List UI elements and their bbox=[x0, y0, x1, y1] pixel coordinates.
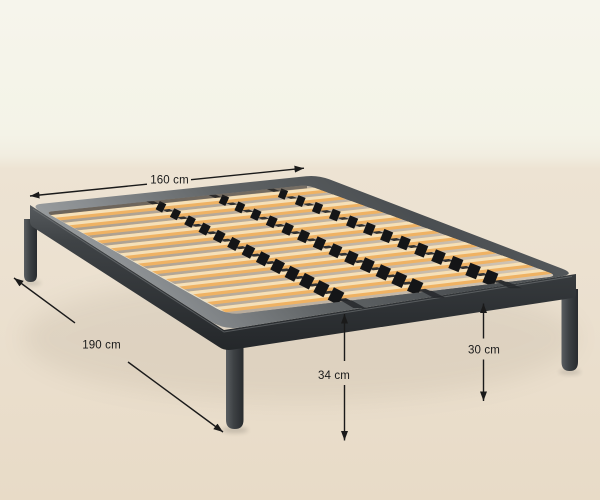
product-dimension-image: 160 cm 190 cm 34 cm 30 cm bbox=[0, 0, 600, 500]
leg-height-dimension-label: 30 cm bbox=[468, 345, 500, 357]
width-arrow-right-segment bbox=[191, 168, 304, 180]
height-dimension-label: 34 cm bbox=[318, 370, 350, 382]
length-dimension-label: 190 cm bbox=[82, 340, 121, 352]
width-arrow-left-segment bbox=[30, 184, 147, 196]
bed-leg-front-right bbox=[562, 289, 579, 371]
bed-frame-illustration: 160 cm 190 cm 34 cm 30 cm bbox=[0, 0, 600, 500]
bed-leg-front-left bbox=[226, 337, 244, 429]
width-dimension-label: 160 cm bbox=[150, 175, 189, 187]
